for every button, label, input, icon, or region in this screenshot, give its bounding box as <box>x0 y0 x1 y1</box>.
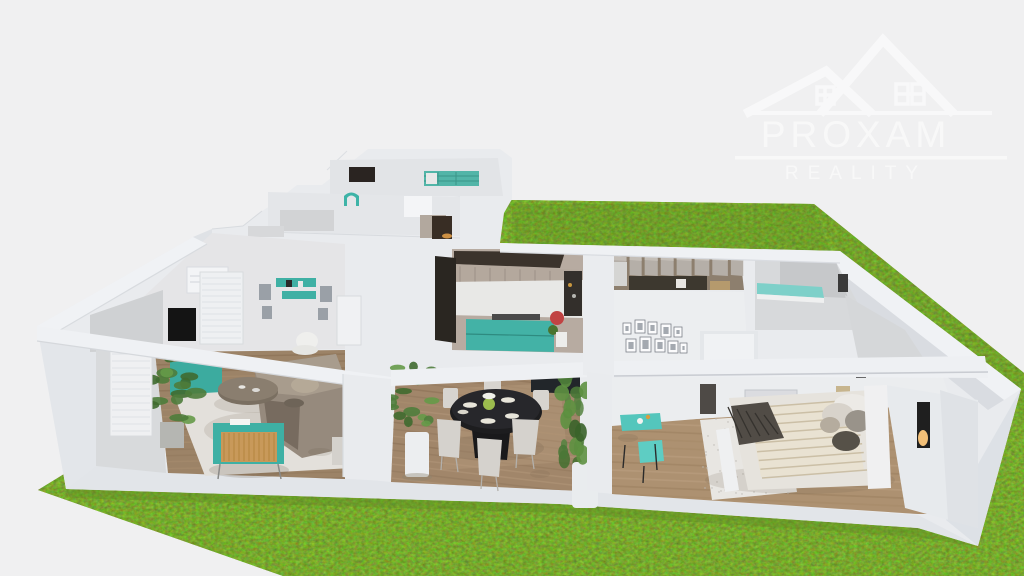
svg-text:PROXAM: PROXAM <box>761 114 951 155</box>
svg-text:REALITY: REALITY <box>785 163 927 184</box>
